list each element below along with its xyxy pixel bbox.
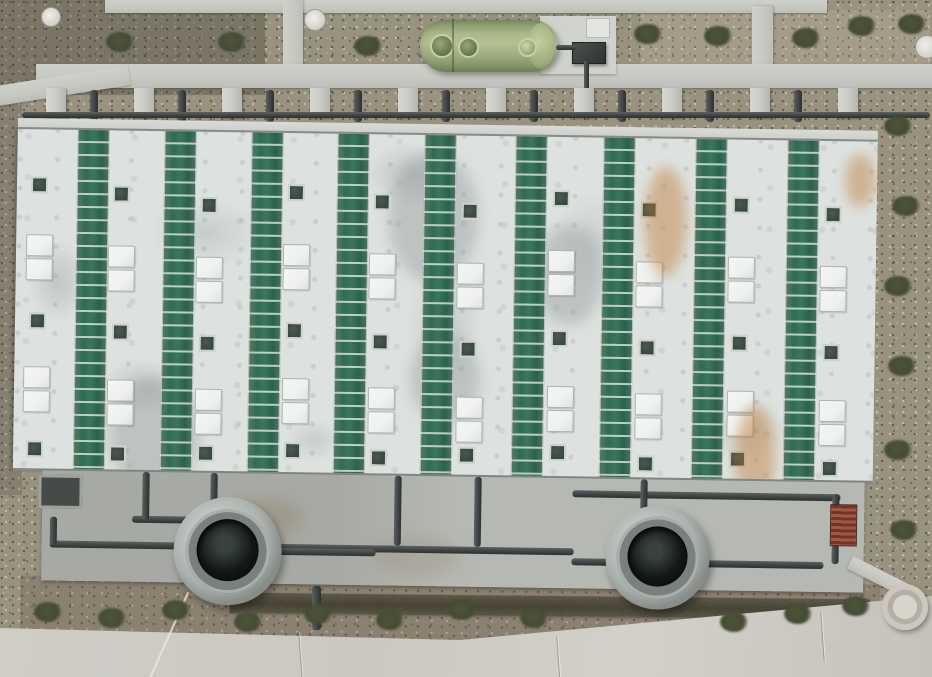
- shrub: [884, 440, 912, 460]
- frp-tank-port: [430, 34, 454, 58]
- roof-skylight: [367, 411, 394, 433]
- shrub: [376, 610, 404, 630]
- apron-stain: [371, 535, 462, 576]
- roof-green-stripe: [420, 133, 457, 476]
- shrub: [842, 596, 870, 616]
- path-connector-left: [283, 0, 303, 70]
- roof-green-stripe: [599, 136, 636, 479]
- roof-skylight: [368, 387, 395, 409]
- shrub: [848, 16, 876, 36]
- roof-skylight: [108, 245, 135, 267]
- roof-skylight: [820, 266, 847, 288]
- apron-riser-pipe: [394, 476, 402, 546]
- manhole-cover: [41, 7, 61, 27]
- roof-vent: [462, 203, 479, 220]
- shrub: [784, 604, 812, 624]
- roof-skylight: [26, 234, 53, 256]
- roof-skylight: [727, 281, 754, 303]
- frp-tank-strap: [452, 20, 454, 72]
- concrete-apron: [41, 470, 865, 592]
- shrub: [218, 32, 246, 52]
- roof-vent: [113, 185, 130, 202]
- roof-vent: [372, 333, 389, 350]
- roof-skylight: [547, 274, 574, 296]
- roof-skylight: [26, 258, 53, 280]
- path-connector-right: [752, 6, 773, 70]
- frp-tank-port: [518, 38, 537, 57]
- shrub: [704, 26, 732, 46]
- header-pipe: [22, 112, 930, 118]
- shrub: [634, 24, 662, 44]
- shrub: [98, 608, 126, 628]
- control-box: [586, 18, 610, 38]
- shrub: [884, 116, 912, 136]
- frp-tank-port: [458, 37, 479, 58]
- roof-vent: [822, 344, 839, 361]
- basin-roof: [13, 127, 878, 483]
- shrub: [898, 14, 926, 34]
- roof-skylight: [456, 287, 483, 309]
- roof-vent: [733, 197, 750, 214]
- shrub: [892, 196, 920, 216]
- tank-outlet-pipe: [556, 45, 576, 50]
- roof-vent: [286, 322, 303, 339]
- roof-vent: [553, 190, 570, 207]
- pump-unit: [572, 42, 606, 64]
- roof-vent: [199, 335, 216, 352]
- roof-skylight: [546, 410, 573, 432]
- shrub: [106, 32, 134, 52]
- roof-vent: [549, 444, 566, 461]
- roof-skylight: [547, 386, 574, 408]
- roof-skylight: [23, 390, 50, 412]
- apron-riser-pipe: [50, 517, 57, 545]
- apron-pipe: [280, 548, 376, 556]
- roof-vent: [370, 449, 387, 466]
- roof-skylight: [195, 281, 222, 303]
- roof-skylight: [819, 290, 846, 312]
- roof-vent: [288, 184, 305, 201]
- roof-green-stripe: [73, 128, 110, 471]
- roof-vent: [551, 330, 568, 347]
- roof-skylight: [368, 277, 395, 299]
- shrub: [884, 276, 912, 296]
- roof-vent: [731, 335, 748, 352]
- roof-skylight: [107, 379, 134, 401]
- manhole-cover: [304, 9, 326, 31]
- gravel-warm-area: [640, 10, 930, 70]
- roof-green-stripe: [333, 132, 370, 475]
- roof-skylight: [548, 250, 575, 272]
- shrub: [34, 602, 62, 622]
- roof-vent: [112, 323, 129, 340]
- roof-skylight: [457, 263, 484, 285]
- shrub: [162, 600, 190, 620]
- roof-skylight: [455, 421, 482, 443]
- roof-skylight: [818, 424, 845, 446]
- covered-basin-building: [11, 118, 878, 595]
- roof-vent: [197, 445, 214, 462]
- roof-skylight: [195, 389, 222, 411]
- roof-vent: [458, 447, 475, 464]
- roof-skylight: [819, 400, 846, 422]
- roof-skylight: [728, 257, 755, 279]
- shrub: [520, 608, 548, 628]
- shrub: [890, 520, 918, 540]
- roof-skylight: [106, 403, 133, 425]
- path-top-edge: [105, 0, 827, 13]
- roof-skylight: [196, 257, 223, 279]
- roof-skylight: [194, 413, 221, 435]
- shrub: [234, 612, 262, 632]
- roof-vent: [201, 197, 218, 214]
- aerial-photo-treatment-plant: [0, 0, 932, 677]
- apron-riser-pipe: [474, 477, 482, 547]
- roof-green-stripe: [247, 130, 284, 473]
- roof-skylight: [283, 244, 310, 266]
- roof-vent: [821, 460, 838, 477]
- roof-vent: [637, 455, 654, 472]
- shrub: [888, 356, 916, 376]
- roof-vent: [31, 176, 48, 193]
- roof-skylight: [456, 397, 483, 419]
- red-stairway: [830, 504, 858, 546]
- roof-skylight: [635, 393, 662, 415]
- roof-skylight: [634, 417, 661, 439]
- roof-vent: [639, 339, 656, 356]
- roof-skylight: [282, 378, 309, 400]
- roof-green-stripe: [783, 138, 820, 481]
- roof-vent: [825, 206, 842, 223]
- roof-skylight: [282, 268, 309, 290]
- concrete-well: [882, 584, 928, 630]
- roof-vent: [459, 341, 476, 358]
- roof-green-stripe: [511, 134, 548, 477]
- apron-access-hatch: [38, 474, 82, 509]
- roof-skylight: [635, 285, 662, 307]
- shrub: [448, 600, 476, 620]
- roof-skylight: [23, 366, 50, 388]
- roof-vent: [26, 440, 43, 457]
- shrub: [792, 28, 820, 48]
- roof-skylight: [281, 402, 308, 424]
- roof-vent: [29, 312, 46, 329]
- roof-vent: [109, 445, 126, 462]
- shrub: [304, 604, 332, 624]
- apron-riser-pipe: [142, 472, 150, 520]
- frp-tank: [420, 20, 558, 72]
- roof-vent: [284, 442, 301, 459]
- roof-green-stripe: [691, 137, 728, 480]
- roof-vent: [374, 193, 391, 210]
- manhole-cover: [915, 35, 932, 59]
- shrub: [354, 36, 382, 56]
- roof-skylight: [107, 269, 134, 291]
- roof-skylight: [369, 253, 396, 275]
- roof-green-stripe: [160, 129, 197, 472]
- shrub: [720, 612, 748, 632]
